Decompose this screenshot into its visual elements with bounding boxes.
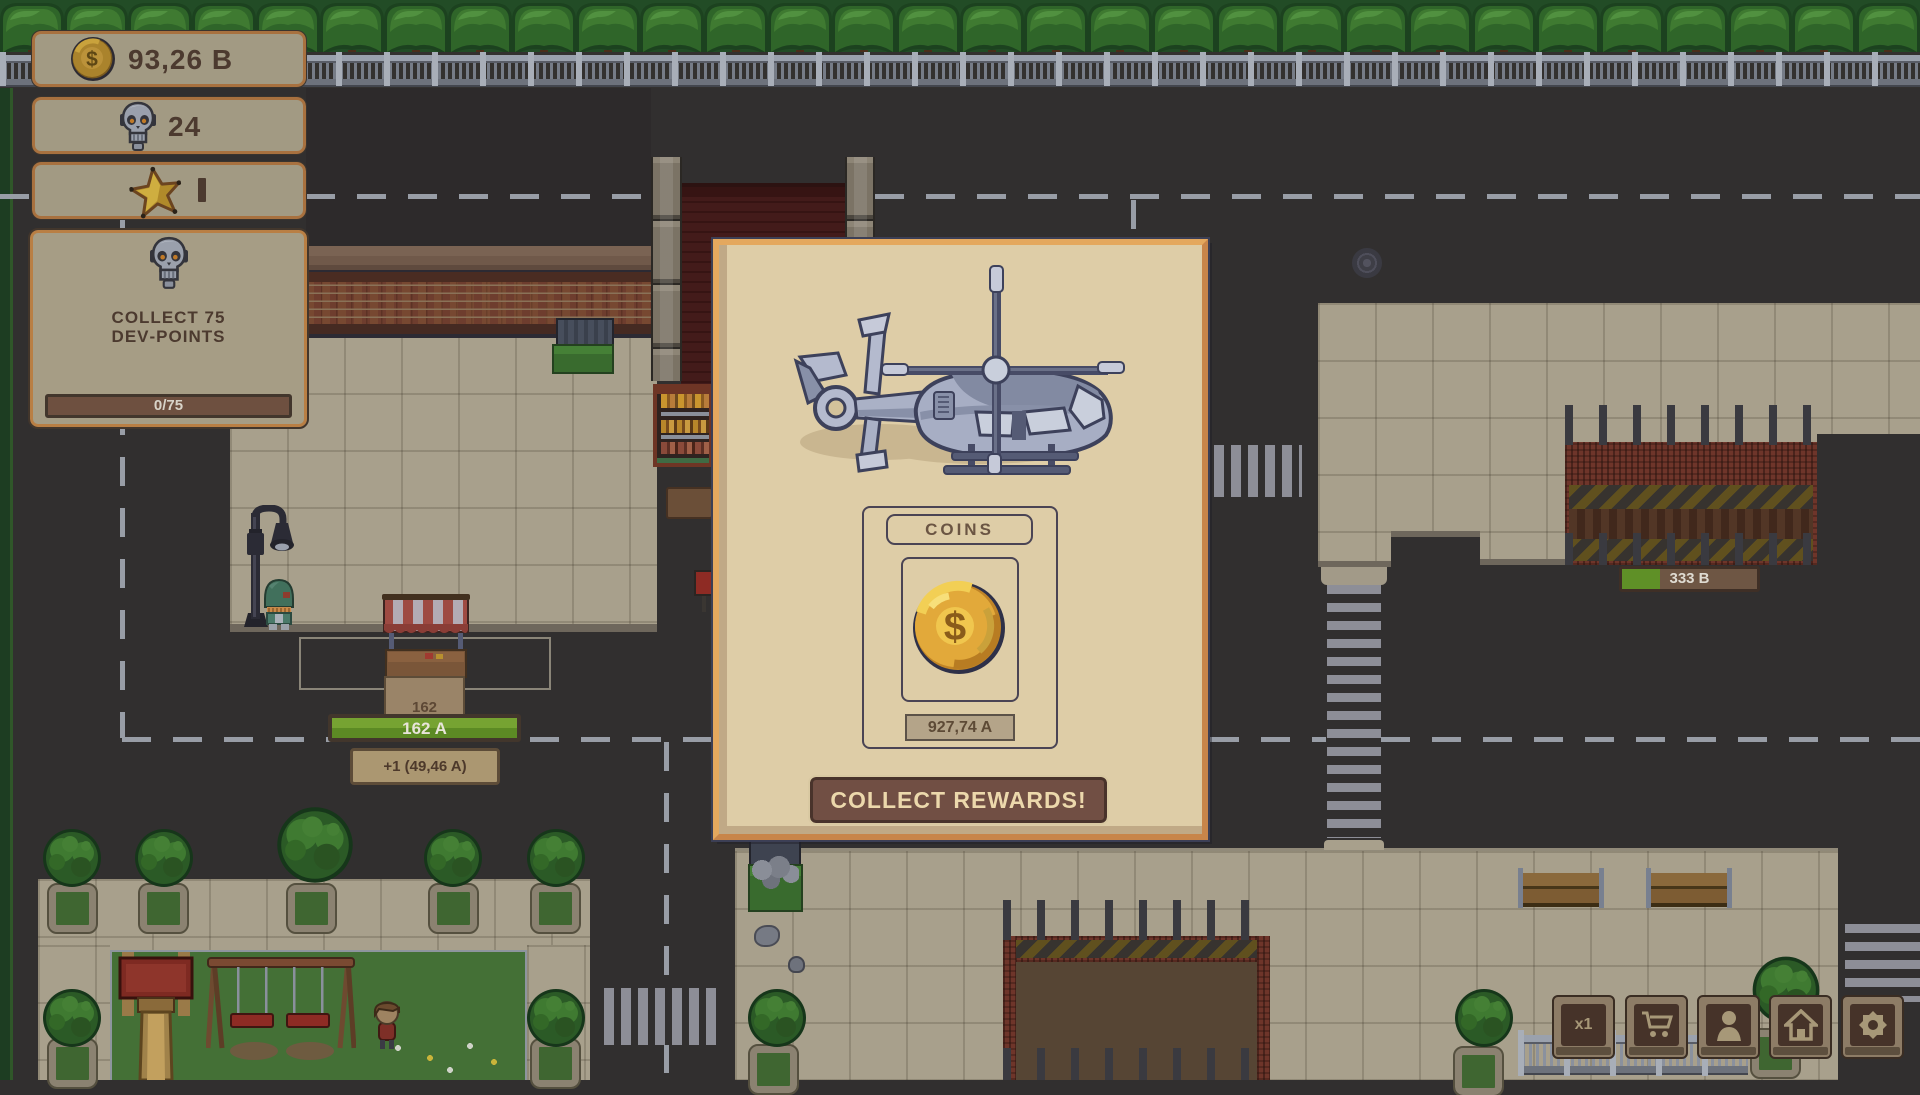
svg-text:$: $ <box>86 48 98 71</box>
svg-text:$: $ <box>944 605 966 649</box>
